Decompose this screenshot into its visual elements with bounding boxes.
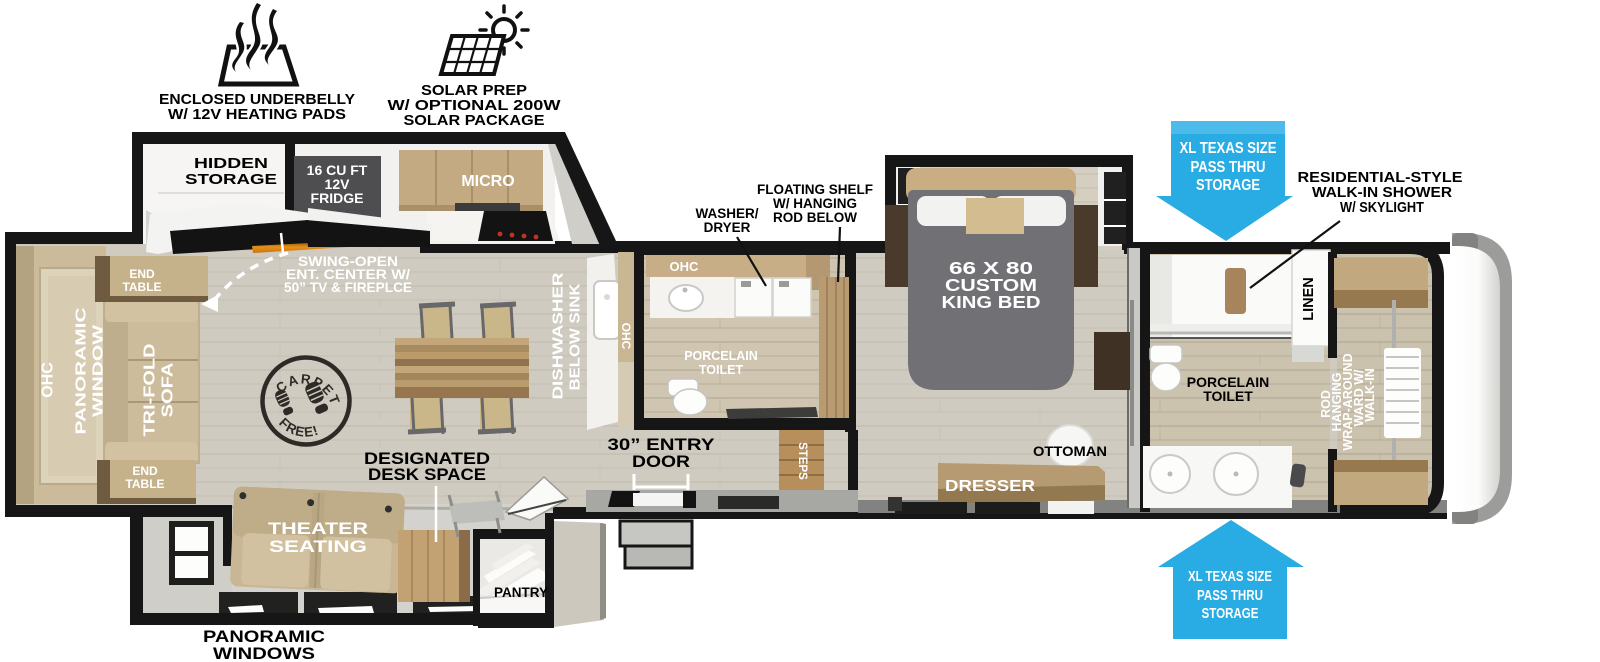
svg-text:END: END: [132, 464, 158, 478]
svg-text:PANTRY: PANTRY: [494, 585, 548, 600]
svg-text:W/ 12V HEATING PADS: W/ 12V HEATING PADS: [168, 106, 346, 123]
svg-text:OHC: OHC: [619, 323, 633, 350]
svg-text:STORAGE: STORAGE: [1202, 605, 1259, 622]
svg-text:TABLE: TABLE: [122, 280, 161, 294]
svg-text:PASS THRU: PASS THRU: [1197, 587, 1263, 604]
svg-text:HIDDEN: HIDDEN: [194, 155, 268, 172]
svg-text:STORAGE: STORAGE: [1196, 177, 1260, 194]
svg-text:MICRO: MICRO: [461, 173, 514, 190]
svg-text:TRI-FOLD: TRI-FOLD: [142, 344, 159, 437]
svg-text:WASHER/: WASHER/: [695, 206, 758, 221]
svg-text:DISHWASHER: DISHWASHER: [550, 272, 567, 399]
svg-text:KING BED: KING BED: [942, 292, 1041, 312]
svg-text:W/ HANGING: W/ HANGING: [773, 196, 857, 211]
svg-text:BELOW SINK: BELOW SINK: [567, 283, 584, 390]
svg-text:TOILET: TOILET: [1203, 388, 1253, 404]
svg-text:ROD: ROD: [1319, 390, 1333, 418]
svg-text:DOOR: DOOR: [632, 452, 690, 471]
svg-text:SEATING: SEATING: [269, 537, 367, 556]
svg-text:XL TEXAS SIZE: XL TEXAS SIZE: [1188, 568, 1272, 585]
svg-text:OHC: OHC: [670, 259, 700, 274]
svg-text:DRYER: DRYER: [704, 220, 751, 235]
svg-text:PASS THRU: PASS THRU: [1191, 159, 1266, 176]
svg-text:WINDOWS: WINDOWS: [213, 644, 315, 662]
svg-text:ROD BELOW: ROD BELOW: [773, 210, 857, 225]
svg-text:FRIDGE: FRIDGE: [311, 190, 364, 206]
svg-text:THEATER: THEATER: [268, 519, 368, 538]
svg-text:TOILET: TOILET: [699, 363, 744, 377]
svg-text:WINDOW: WINDOW: [90, 324, 107, 417]
svg-text:DESK SPACE: DESK SPACE: [368, 466, 486, 484]
svg-text:PANORAMIC: PANORAMIC: [73, 307, 90, 434]
svg-text:LINEN: LINEN: [1301, 277, 1317, 321]
svg-text:XL TEXAS SIZE: XL TEXAS SIZE: [1180, 140, 1277, 157]
svg-text:DRESSER: DRESSER: [945, 478, 1036, 495]
svg-text:TABLE: TABLE: [125, 477, 164, 491]
svg-text:STORAGE: STORAGE: [185, 171, 277, 188]
svg-text:SOFA: SOFA: [160, 362, 177, 418]
svg-text:W/ SKYLIGHT: W/ SKYLIGHT: [1340, 199, 1424, 216]
svg-text:OHC: OHC: [40, 362, 57, 398]
svg-text:END: END: [129, 267, 155, 281]
svg-text:50” TV & FIREPLCE: 50” TV & FIREPLCE: [284, 279, 412, 295]
svg-text:STEPS: STEPS: [796, 442, 808, 480]
svg-text:SOLAR PACKAGE: SOLAR PACKAGE: [404, 112, 545, 129]
svg-text:PORCELAIN: PORCELAIN: [684, 349, 758, 363]
svg-text:OTTOMAN: OTTOMAN: [1033, 444, 1107, 459]
svg-text:FLOATING SHELF: FLOATING SHELF: [757, 182, 873, 197]
